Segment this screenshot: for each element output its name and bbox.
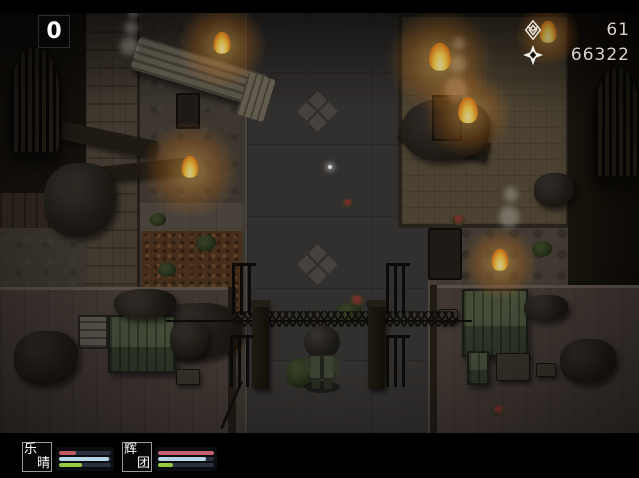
burnt-debris-pile [114,289,176,319]
mp-bar-fill [59,457,109,461]
sparkle-glint [328,165,332,169]
currency-panel: 61 66322 [520,17,630,67]
party-member: 乐 晴 [22,442,118,474]
hp-bar-fill [59,451,76,455]
red-flower-plant [342,199,353,208]
metal-shelf [78,315,108,349]
rock-pile [560,339,616,383]
tp-bar [59,463,111,467]
red-flower-plant [492,405,505,416]
green-locker [467,351,489,385]
party-member-status-bars [155,447,217,471]
mp-bar [59,457,111,461]
party-member-name-char: 乐 [24,443,37,457]
weed-bush [196,235,216,251]
party-member: 辉 团 [122,442,222,474]
crate-cluster [496,353,530,381]
mp-bar [158,457,214,461]
game-screen: 0 61 66322 [0,0,639,478]
iron-railing-upper-right [386,263,410,315]
iron-railing-upper-left [232,263,256,315]
tp-bar [158,463,214,467]
currency-value: 61 [546,20,630,40]
party-member-name-char: 团 [137,457,150,471]
hanging-cage-left [8,45,62,155]
stone-furnace [428,228,462,280]
letterbox-top [0,0,639,13]
character-helmet [304,325,340,359]
character-arm [305,358,311,373]
rubble-pile [44,163,116,237]
character-strap [320,356,324,378]
iron-railing-left [230,335,254,387]
currency-value: 66322 [546,45,630,65]
game-viewport[interactable] [0,13,639,433]
iron-railing-right [386,335,410,387]
character-leg [324,379,332,389]
burnt-debris-pile [14,331,78,385]
four-point-star-icon [520,43,546,67]
hanging-cage-right [592,65,639,179]
encounter-counter: 0 [38,15,70,48]
gate-post-right [368,303,385,389]
hp-bar [59,451,111,455]
party-member-name-char: 辉 [124,443,137,457]
party-member-name-badge: 乐 晴 [22,442,52,472]
weed-bush [150,213,166,226]
hp-bar [158,451,214,455]
burnt-debris-pile [170,319,208,359]
party-member-status-bars [56,447,114,471]
green-storage-container [108,315,176,373]
mp-bar-fill [158,457,206,461]
rooftop-right-wall-edge [430,285,437,433]
rubble-pile [534,173,574,207]
gate-post-left [252,303,269,389]
red-flower-plant [452,215,465,226]
encounter-counter-value: 0 [46,19,61,44]
player-character [302,325,342,391]
scattered-stone [536,363,556,377]
currency-row: 66322 [520,42,630,67]
tp-bar-fill [59,463,82,467]
green-storage-container [462,289,528,357]
party-member-name-char: 晴 [37,457,50,471]
hp-bar-fill [158,451,214,455]
party-member-name-badge: 辉 团 [122,442,152,472]
emblem-icon [520,18,546,42]
scattered-stone [176,369,200,385]
character-arm [333,358,339,373]
tp-bar-fill [158,463,173,467]
gate-post-cap [366,300,387,307]
red-flower-plant [350,295,364,307]
currency-row: 61 [520,17,630,42]
weed-bush [158,263,176,277]
character-shadow [304,381,340,393]
rock-pile [524,295,568,321]
character-leg [312,379,320,389]
